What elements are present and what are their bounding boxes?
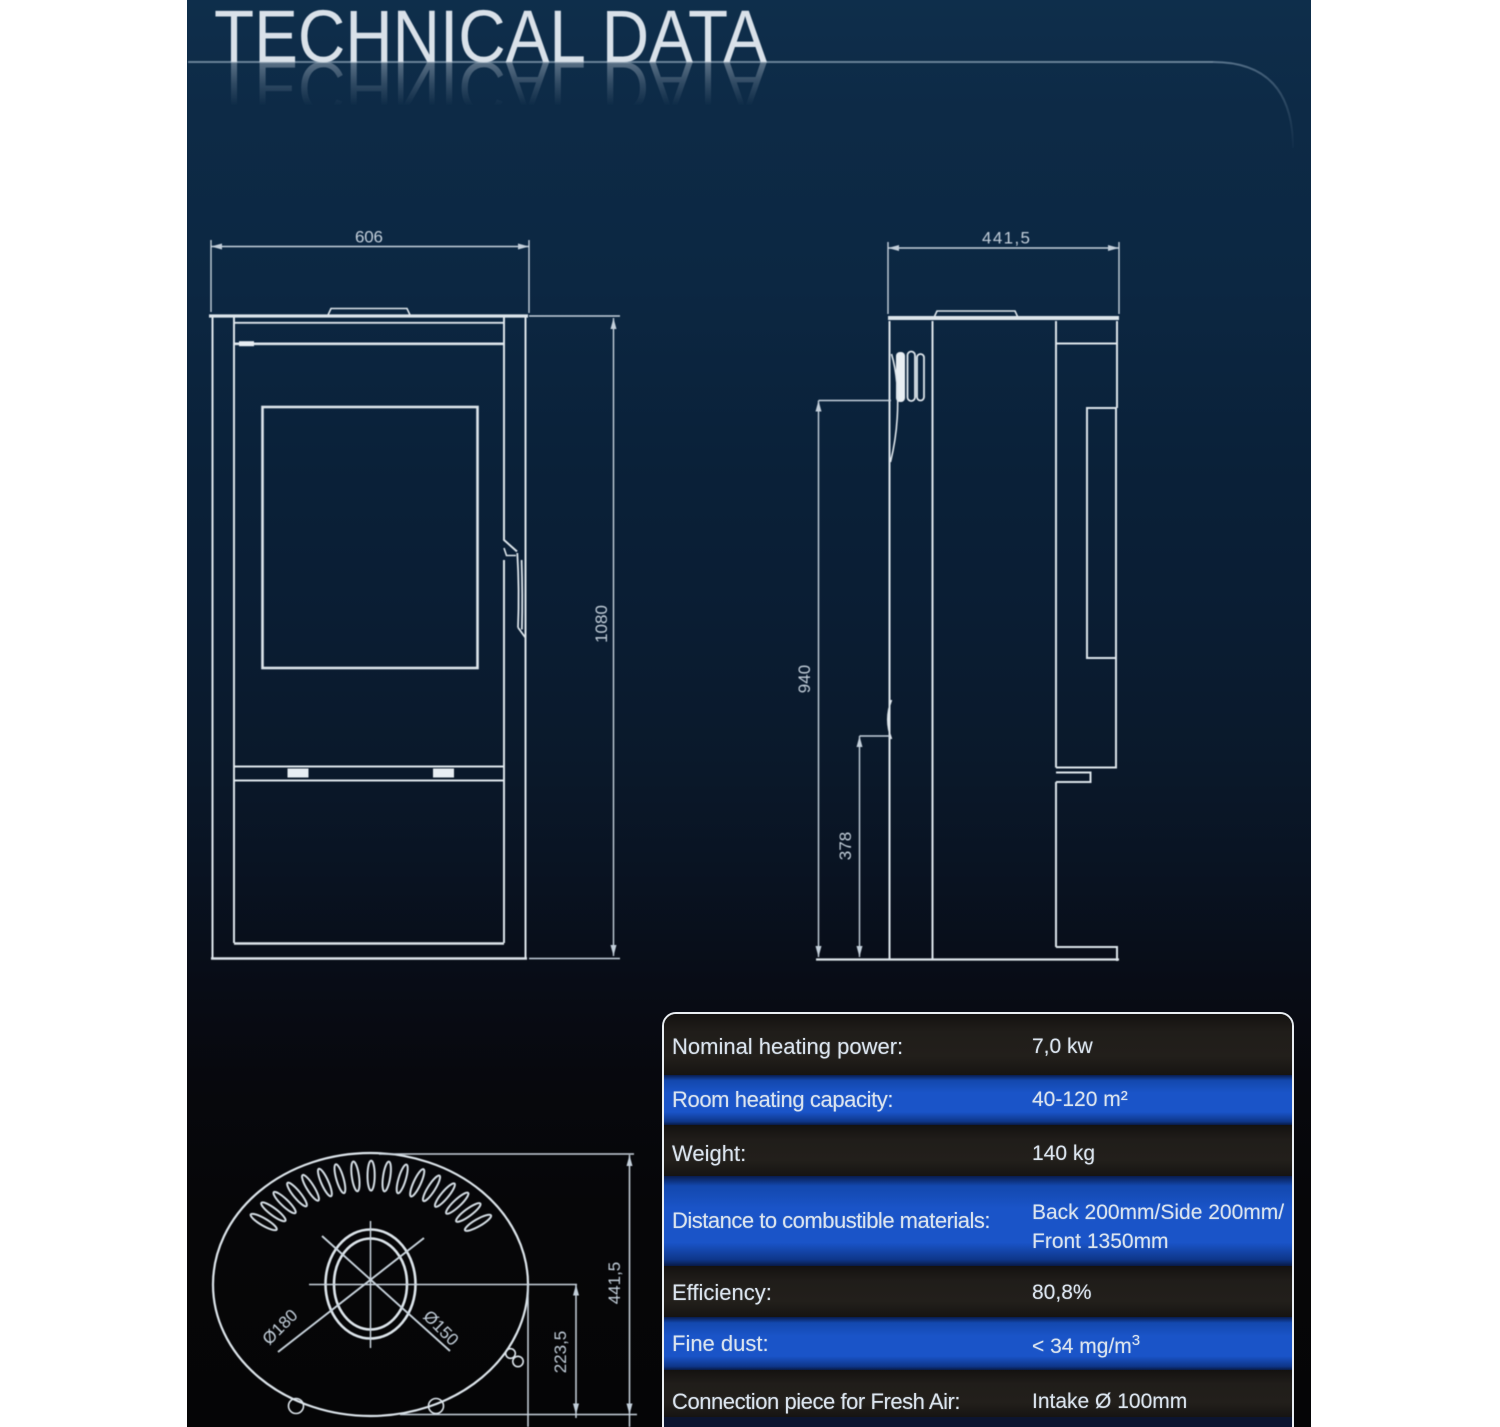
svg-text:606: 606: [355, 228, 383, 247]
svg-text:1080: 1080: [592, 605, 611, 643]
svg-text:223,5: 223,5: [551, 1331, 570, 1374]
svg-text:TECHNICAL DATA: TECHNICAL DATA: [214, 46, 768, 129]
svg-text:441,5: 441,5: [605, 1262, 624, 1305]
svg-text:378: 378: [836, 832, 855, 860]
svg-text:441,5: 441,5: [982, 229, 1030, 248]
svg-text:940: 940: [795, 665, 814, 693]
svg-text:Ø180: Ø180: [259, 1306, 302, 1349]
